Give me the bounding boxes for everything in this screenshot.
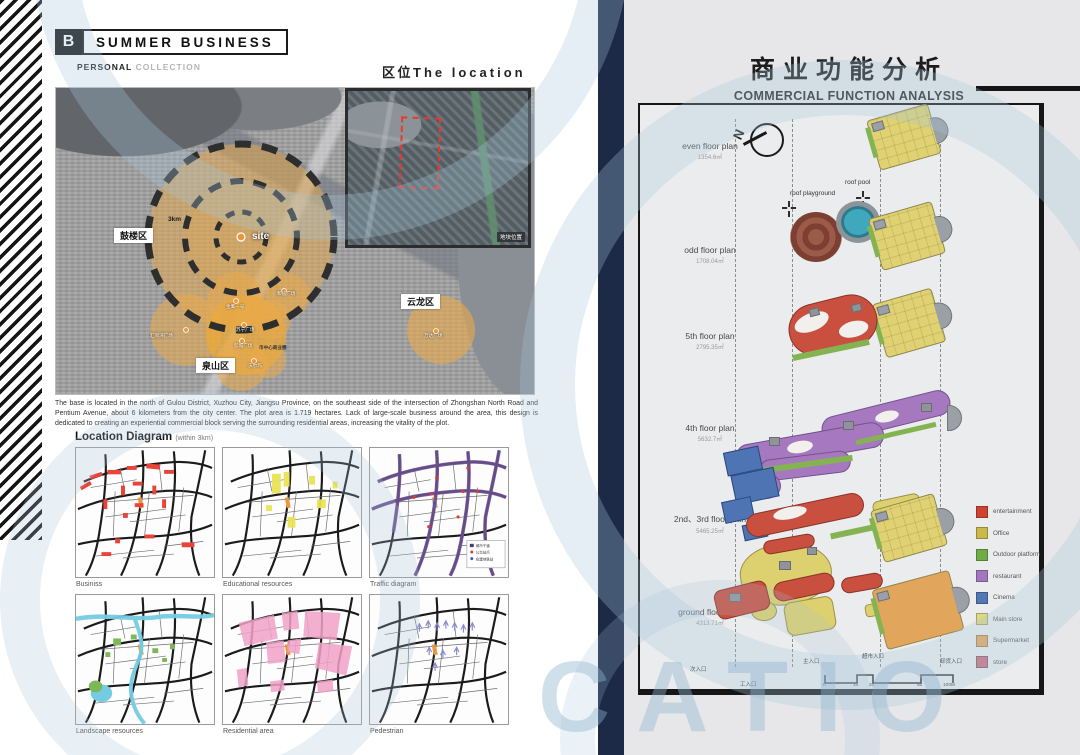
floor-label-even: even floor plan1354.6㎡ — [635, 141, 785, 161]
legend-swatch — [976, 506, 988, 518]
analysis-title-cn: 商业功能分析 — [684, 50, 1014, 86]
legend-item: Office — [976, 523, 1042, 545]
diagram-title-note: (within 3km) — [175, 435, 213, 442]
mini-map-caption: Educational resources — [223, 581, 292, 588]
svg-text:城市干道: 城市干道 — [476, 543, 491, 548]
location-section-title: 区位The location — [382, 62, 526, 81]
poi-label: 万达广场 — [424, 333, 442, 339]
traffic-legend: 城市干道 公交站点 在建地铁站 — [467, 540, 505, 567]
analysis-title-en: COMMERCIAL FUNCTION ANALYSIS — [684, 89, 1014, 103]
floor-plans-panel: N even floor plan1354.6㎡ odd floor plan1… — [638, 103, 1044, 695]
function-legend: entertainment Office Outdoor platform re… — [976, 501, 1042, 673]
scale-bar: 0 10 20 50 100M — [823, 667, 959, 691]
mini-map-caption: Landscape resources — [76, 728, 143, 735]
floor-label-5th: 5th floor plan2795.35㎡ — [635, 331, 785, 351]
section-badge: B — [55, 29, 82, 55]
location-title-cn: 区位 — [382, 65, 413, 80]
legend-item: Supermarket — [976, 630, 1042, 652]
mini-map-caption: Traffic diagram — [370, 581, 416, 588]
poi-label: 沃尔玛 — [248, 363, 262, 369]
poi-label: 苏宁广场 — [236, 327, 254, 333]
svg-text:公交站点: 公交站点 — [476, 550, 491, 555]
legend-swatch — [976, 570, 988, 582]
inset-caption: 地块位置 — [497, 232, 525, 242]
subtitle-bold: PERSONAL — [77, 62, 132, 72]
legend-swatch — [976, 527, 988, 539]
mini-map-caption: Businiss — [76, 581, 102, 588]
poi-label: 和信广场 — [277, 291, 295, 297]
legend-swatch — [976, 613, 988, 625]
district-label-gulou: 鼓楼区 — [114, 228, 153, 243]
roof-playground — [790, 212, 842, 262]
mini-map-caption: Pedestrian — [370, 728, 403, 735]
mini-map-caption: Residential area — [223, 728, 274, 735]
roof-pool-label: roof pool — [845, 179, 870, 186]
mini-map-pedestrian — [369, 594, 509, 725]
roof-playground-label: roof playground — [790, 190, 835, 197]
poi-label: 金鹰一号 — [226, 304, 244, 310]
landscape-marks — [76, 615, 214, 724]
legend-swatch — [976, 549, 988, 561]
header-rule — [976, 86, 1080, 91]
legend-item: store — [976, 652, 1042, 674]
site-label: site — [252, 231, 269, 242]
analysis-page: 商业功能分析 COMMERCIAL FUNCTION ANALYSIS N ev… — [624, 0, 1080, 755]
svg-text:在建地铁站: 在建地铁站 — [476, 556, 494, 561]
mini-map-educational — [222, 447, 362, 578]
entrance-label: 卸货入口 — [940, 657, 962, 665]
mini-map-residential — [222, 594, 362, 725]
site-description: The base is located in the north of Gulo… — [55, 399, 538, 428]
district-label-quanshan: 泉山区 — [196, 358, 235, 373]
entrance-label: 次入口 — [690, 665, 707, 673]
metro-dot — [433, 501, 437, 505]
legend-item: Cinema — [976, 587, 1042, 609]
diagram-section-title: Location Diagram (within 3km) — [75, 431, 213, 443]
entrance-label: 工入口 — [740, 680, 757, 688]
legend-item: entertainment — [976, 501, 1042, 523]
legend-item: Main store — [976, 609, 1042, 631]
legend-swatch — [976, 635, 988, 647]
main-store-5th — [871, 288, 946, 359]
poi-label: 汇邻湾广场 — [150, 333, 173, 339]
mini-map-business — [75, 447, 215, 578]
diagonal-stripes-band — [0, 0, 42, 540]
poi-label: 彭城广场 — [234, 343, 252, 349]
entrance-label: 主入口 — [803, 657, 820, 665]
site-boundary-rect — [399, 116, 441, 189]
analysis-header: 商业功能分析 COMMERCIAL FUNCTION ANALYSIS — [684, 50, 1014, 103]
presentation-board: B SUMMER BUSINESS PERSONAL COLLECTION 区位… — [0, 0, 1080, 755]
subtitle-light: COLLECTION — [136, 62, 201, 72]
floor-label-odd: odd floor plan1708.04㎡ — [635, 245, 785, 265]
legend-swatch — [976, 656, 988, 668]
diagram-title-text: Location Diagram — [75, 431, 172, 443]
district-label-yunlong: 云龙区 — [401, 294, 440, 309]
mini-map-landscape — [75, 594, 215, 725]
page-title: SUMMER BUSINESS — [82, 29, 288, 55]
poi-label: 市中心商业圈 — [259, 345, 287, 351]
residential-marks — [237, 611, 352, 693]
location-inset-map: 地块位置 — [345, 88, 531, 248]
page-subtitle: PERSONAL COLLECTION — [77, 62, 201, 72]
page-divider-band — [598, 0, 624, 755]
marker-cross — [782, 201, 796, 217]
mini-map-traffic: 城市干道 公交站点 在建地铁站 — [369, 447, 509, 578]
location-title-en: The location — [413, 65, 526, 80]
ring-distance-label: 3km — [168, 216, 181, 223]
entrance-label: 超市入口 — [862, 652, 884, 660]
legend-item: Outdoor platform — [976, 544, 1042, 566]
legend-swatch — [976, 592, 988, 604]
main-store-even — [866, 103, 942, 171]
legend-item: restaurant — [976, 566, 1042, 588]
